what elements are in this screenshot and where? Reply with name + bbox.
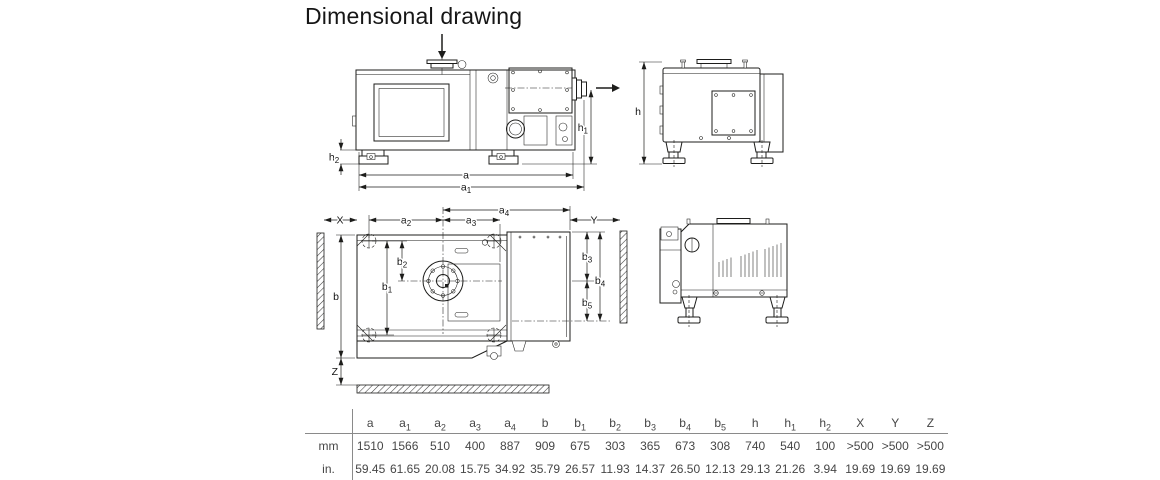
dimension-Y: Y xyxy=(570,215,620,227)
exhaust-flow-arrow-icon xyxy=(596,84,620,92)
value-cell: 14.37 xyxy=(633,457,668,480)
table-row-in: in.59.4561.6520.0815.7534.9235.7926.5711… xyxy=(305,457,948,480)
datasheet-page: Dimensional drawing xyxy=(0,0,1160,480)
dim-label-Z: Z xyxy=(332,366,339,378)
dim-label-h1: h1 xyxy=(578,122,589,136)
unit-label: in. xyxy=(305,457,353,480)
value-cell: >500 xyxy=(913,434,948,458)
col-header-sub: 1 xyxy=(791,422,796,432)
col-header-a: a xyxy=(353,409,388,434)
value-cell: 1566 xyxy=(388,434,423,458)
wall-right xyxy=(620,231,627,323)
side-view-drawing: h2 a a1 h1 xyxy=(333,30,627,202)
inlet-flange xyxy=(427,55,466,75)
value-cell: 400 xyxy=(458,434,493,458)
value-cell: 20.08 xyxy=(423,457,458,480)
col-header-a1: a1 xyxy=(388,409,423,434)
value-cell: 26.57 xyxy=(563,457,598,480)
end-body xyxy=(660,60,783,153)
dim-label-h2: h2 xyxy=(329,152,340,166)
dimension-b4: b4 xyxy=(595,232,606,321)
value-cell: 540 xyxy=(773,434,808,458)
col-header-a4: a4 xyxy=(493,409,528,434)
col-header-base: h xyxy=(752,416,759,430)
dim-label-b4: b4 xyxy=(595,275,606,289)
dimension-Z: Z xyxy=(332,358,357,385)
dim-label-b1: b1 xyxy=(382,281,393,295)
value-cell: 26.50 xyxy=(668,457,703,480)
value-cell: 19.69 xyxy=(878,457,913,480)
col-header-b5: b5 xyxy=(703,409,738,434)
col-header-b4: b4 xyxy=(668,409,703,434)
value-cell: 59.45 xyxy=(353,457,388,480)
dim-label-Y: Y xyxy=(590,215,597,227)
col-header-sub: 2 xyxy=(441,422,446,432)
col-header-a2: a2 xyxy=(423,409,458,434)
col-header-Y: Y xyxy=(878,409,913,434)
value-cell: 510 xyxy=(423,434,458,458)
rear-bolts xyxy=(714,291,765,296)
col-header-base: b xyxy=(574,416,581,430)
col-header-X: X xyxy=(843,409,878,434)
value-cell: >500 xyxy=(878,434,913,458)
dim-label-a: a xyxy=(463,170,469,182)
value-cell: 303 xyxy=(598,434,633,458)
col-header-base: b xyxy=(542,416,549,430)
value-cell: 3.94 xyxy=(808,457,843,480)
dim-label-X: X xyxy=(336,215,343,227)
col-header-base: a xyxy=(367,416,374,430)
value-cell: 675 xyxy=(563,434,598,458)
col-header-base: Y xyxy=(891,416,899,430)
col-header-base: a xyxy=(399,416,406,430)
value-cell: 29.13 xyxy=(738,457,773,480)
col-header-sub: 3 xyxy=(651,422,656,432)
dimension-a3: a3 xyxy=(443,215,500,263)
dimension-a2: a2 xyxy=(369,215,443,239)
value-cell: 35.79 xyxy=(528,457,563,480)
dimension-b2: b2 xyxy=(397,241,408,281)
dim-label-a4: a4 xyxy=(499,205,510,219)
exhaust-flange xyxy=(572,78,587,100)
dimension-a4: a4 xyxy=(443,205,570,231)
dim-label-a2: a2 xyxy=(401,215,412,229)
value-cell: 15.75 xyxy=(458,457,493,480)
dimension-h: h xyxy=(635,62,662,164)
col-header-sub: 4 xyxy=(686,422,691,432)
col-header-base: b xyxy=(679,416,686,430)
unit-label: mm xyxy=(305,434,353,458)
value-cell: 12.13 xyxy=(703,457,738,480)
col-header-a3: a3 xyxy=(458,409,493,434)
value-cell: 11.93 xyxy=(598,457,633,480)
page-title: Dimensional drawing xyxy=(305,3,522,29)
top-view-drawing: a4 a2 a3 X Y b b1 xyxy=(308,203,632,399)
col-header-h: h xyxy=(738,409,773,434)
end-feet xyxy=(663,140,773,167)
col-header-sub: 4 xyxy=(511,422,516,432)
col-header-sub: 1 xyxy=(581,422,586,432)
col-header-base: Z xyxy=(927,416,934,430)
vent-slots xyxy=(719,243,781,277)
value-cell: 887 xyxy=(493,434,528,458)
col-header-sub: 3 xyxy=(476,422,481,432)
value-cell: 19.69 xyxy=(913,457,948,480)
col-header-sub: 5 xyxy=(721,422,726,432)
col-header-b1: b1 xyxy=(563,409,598,434)
dim-label-b: b xyxy=(333,291,339,303)
col-header-b: b xyxy=(528,409,563,434)
col-header-sub: 2 xyxy=(616,422,621,432)
value-cell: 909 xyxy=(528,434,563,458)
value-cell: 21.26 xyxy=(773,457,808,480)
dim-label-b3: b3 xyxy=(582,251,593,265)
col-header-sub: 2 xyxy=(826,422,831,432)
col-header-base: a xyxy=(434,416,441,430)
table-row-mm: mm15101566510400887909675303365673308740… xyxy=(305,434,948,458)
col-header-base: b xyxy=(644,416,651,430)
dim-label-b5: b5 xyxy=(582,297,593,311)
wall-bottom xyxy=(357,385,549,393)
col-header-base: X xyxy=(856,416,864,430)
col-header-b2: b2 xyxy=(598,409,633,434)
dim-label-a1: a1 xyxy=(461,182,472,196)
col-header-base: b xyxy=(714,416,721,430)
col-header-h1: h1 xyxy=(773,409,808,434)
value-cell: 34.92 xyxy=(493,457,528,480)
dimension-X: X xyxy=(324,215,357,227)
col-header-base: a xyxy=(469,416,476,430)
col-header-base: b xyxy=(609,416,616,430)
table-header-row: aa1a2a3a4bb1b2b3b4b5hh1h2XYZ xyxy=(305,409,948,434)
col-header-base: a xyxy=(504,416,511,430)
dim-label-h: h xyxy=(635,106,641,118)
value-cell: 673 xyxy=(668,434,703,458)
dim-label-a3: a3 xyxy=(466,215,477,229)
top-body xyxy=(357,235,507,358)
value-cell: 740 xyxy=(738,434,773,458)
dim-label-b2: b2 xyxy=(397,256,408,270)
rear-feet xyxy=(678,295,788,327)
dimension-b: b xyxy=(333,235,355,358)
col-header-b3: b3 xyxy=(633,409,668,434)
value-cell: 1510 xyxy=(353,434,388,458)
col-header-sub: 1 xyxy=(406,422,411,432)
dimension-a1: a1 xyxy=(359,100,584,195)
value-cell: 365 xyxy=(633,434,668,458)
table-corner-cell xyxy=(305,409,353,434)
value-cell: >500 xyxy=(843,434,878,458)
col-header-h2: h2 xyxy=(808,409,843,434)
value-cell: 19.69 xyxy=(843,457,878,480)
value-cell: 61.65 xyxy=(388,457,423,480)
rear-side-view-drawing xyxy=(652,207,800,333)
dimension-b5: b5 xyxy=(582,281,593,321)
rear-body xyxy=(660,219,787,304)
value-cell: 308 xyxy=(703,434,738,458)
end-view-drawing: h xyxy=(628,55,802,185)
dimensions-table: aa1a2a3a4bb1b2b3b4b5hh1h2XYZ mm151015665… xyxy=(305,409,948,480)
pump-feet xyxy=(359,150,518,164)
wall-left xyxy=(317,233,324,329)
value-cell: 100 xyxy=(808,434,843,458)
col-header-Z: Z xyxy=(913,409,948,434)
